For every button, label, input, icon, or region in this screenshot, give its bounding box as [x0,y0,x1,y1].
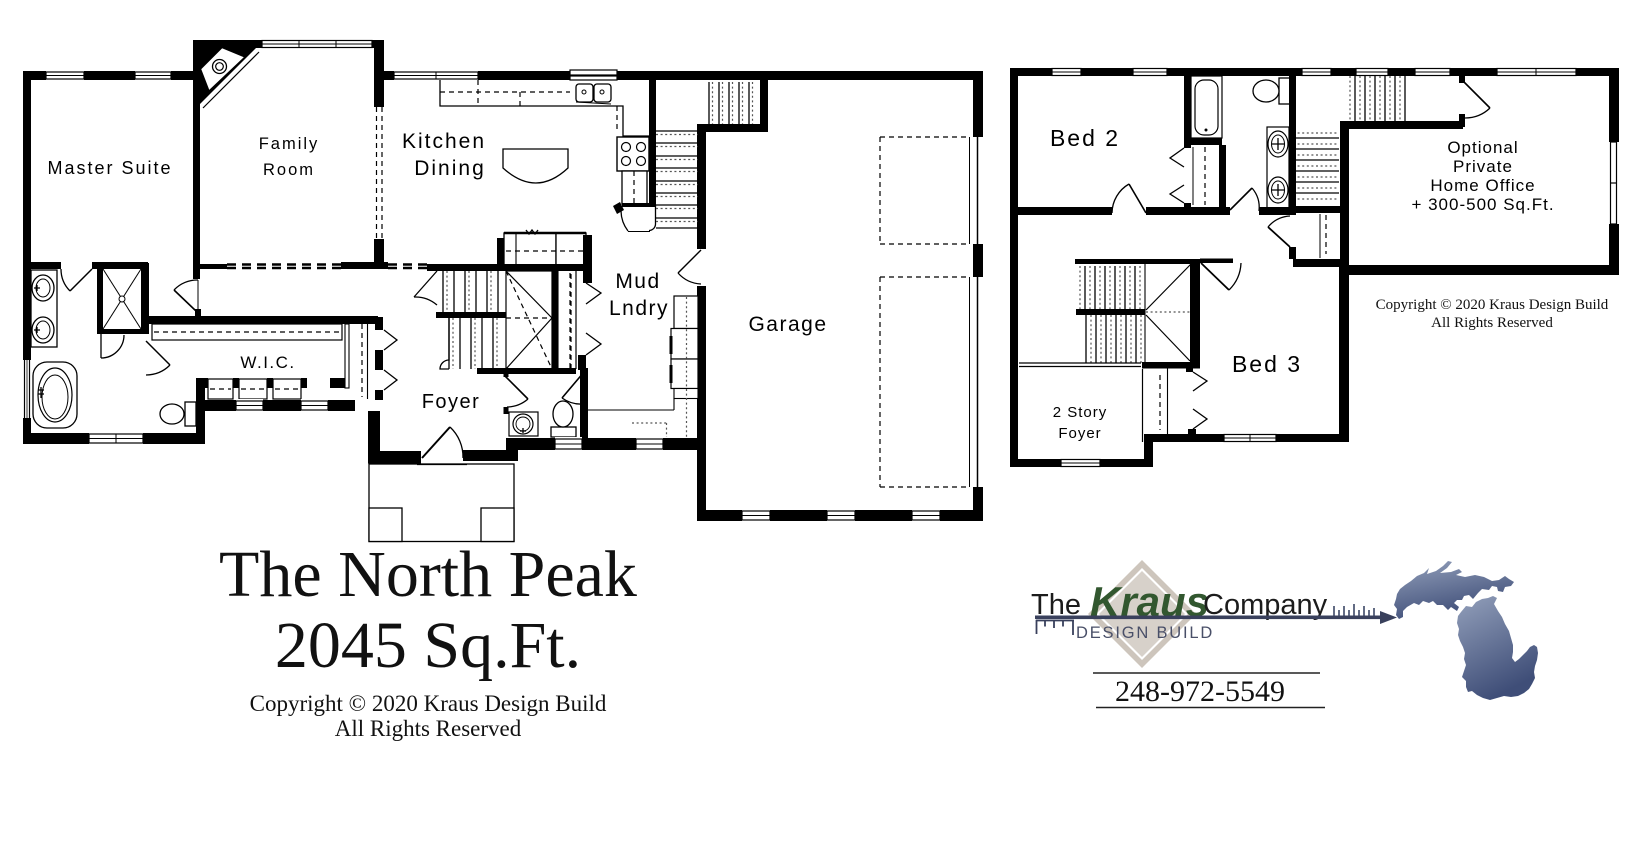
svg-text:Foyer: Foyer [1058,425,1101,442]
svg-text:All Rights Reserved: All Rights Reserved [1431,315,1553,331]
svg-text:Lndry: Lndry [609,297,669,320]
svg-text:2045 Sq.Ft.: 2045 Sq.Ft. [275,609,581,682]
svg-text:The North Peak: The North Peak [219,538,637,611]
svg-text:Foyer: Foyer [422,391,481,413]
svg-text:All Rights Reserved: All Rights Reserved [335,716,522,741]
svg-text:248-972-5549: 248-972-5549 [1115,675,1285,708]
svg-text:Dining: Dining [414,157,486,180]
svg-text:+ 300-500 Sq.Ft.: + 300-500 Sq.Ft. [1411,195,1554,214]
svg-text:Home Office: Home Office [1430,176,1535,195]
svg-text:Copyright © 2020 Kraus Design: Copyright © 2020 Kraus Design Build [1376,297,1609,313]
svg-text:DESIGN BUILD: DESIGN BUILD [1076,624,1214,642]
svg-text:W.I.C.: W.I.C. [240,353,295,372]
svg-text:Copyright © 2020 Kraus Design: Copyright © 2020 Kraus Design Build [250,691,607,716]
svg-text:Mud: Mud [615,270,660,293]
svg-text:Private: Private [1453,157,1513,176]
svg-text:Room: Room [263,161,315,179]
svg-text:Family: Family [259,135,320,153]
svg-text:Optional: Optional [1447,138,1518,157]
svg-text:Bed 2: Bed 2 [1050,125,1120,151]
svg-text:Garage: Garage [748,313,827,336]
svg-text:2 Story: 2 Story [1053,404,1108,421]
svg-text:Kitchen: Kitchen [402,130,486,153]
svg-text:Master Suite: Master Suite [47,158,172,178]
svg-text:Bed 3: Bed 3 [1232,351,1302,377]
